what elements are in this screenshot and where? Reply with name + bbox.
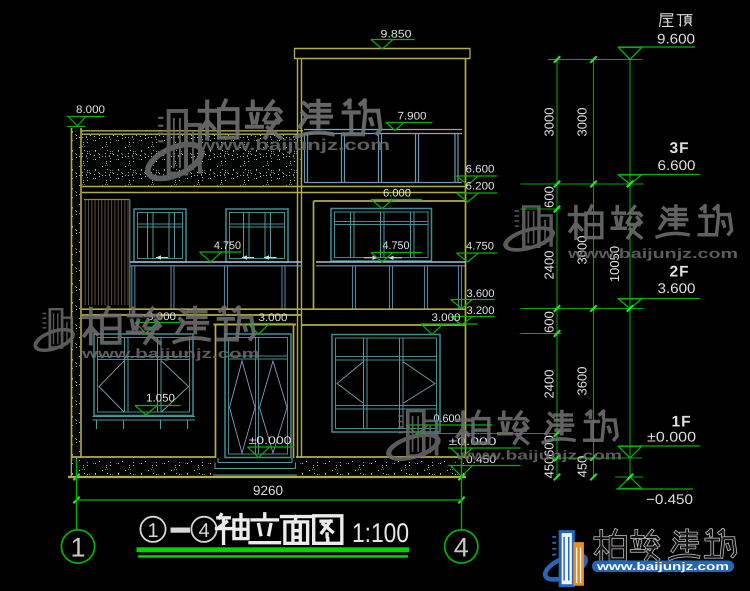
svg-text:1: 1: [70, 533, 85, 563]
svg-text:2400: 2400: [542, 370, 557, 399]
svg-text:9260: 9260: [253, 483, 283, 498]
svg-text:−0.450: −0.450: [646, 491, 693, 507]
svg-text:600: 600: [542, 186, 557, 208]
svg-text:7.900: 7.900: [398, 111, 427, 123]
svg-text:600: 600: [542, 311, 557, 333]
svg-text:4: 4: [198, 520, 209, 542]
svg-text:6.600: 6.600: [658, 157, 696, 173]
svg-text:1: 1: [147, 520, 158, 542]
svg-text:3.200: 3.200: [467, 305, 495, 317]
svg-text:www.baijunjz.com: www.baijunjz.com: [80, 346, 260, 361]
svg-text:3.600: 3.600: [658, 280, 696, 296]
svg-text:6.600: 6.600: [466, 164, 495, 176]
svg-text:6.200: 6.200: [466, 181, 495, 193]
svg-text:4.750: 4.750: [214, 240, 241, 252]
svg-text:3600: 3600: [575, 367, 590, 396]
svg-text:3F: 3F: [669, 140, 689, 157]
svg-text:6.000: 6.000: [383, 188, 411, 200]
svg-text:3.000: 3.000: [432, 312, 461, 324]
svg-text:4.750: 4.750: [466, 241, 494, 253]
svg-text:±0.000: ±0.000: [249, 435, 292, 447]
svg-text:9.600: 9.600: [657, 31, 695, 47]
svg-text:4: 4: [454, 533, 469, 563]
svg-text:3.000: 3.000: [259, 312, 288, 324]
svg-text:www.baijunjz.com: www.baijunjz.com: [197, 137, 390, 154]
svg-text:www.baijunjz.com: www.baijunjz.com: [455, 448, 622, 463]
svg-text:1:100: 1:100: [352, 518, 409, 548]
svg-text:2F: 2F: [669, 264, 689, 281]
svg-text:3000: 3000: [575, 108, 590, 137]
svg-text:www.baijunjz.com: www.baijunjz.com: [567, 246, 738, 261]
svg-text:3000: 3000: [542, 108, 557, 137]
svg-text:3.600: 3.600: [467, 288, 495, 300]
svg-text:www.baijunjz.com: www.baijunjz.com: [596, 561, 730, 573]
svg-text:2400: 2400: [542, 251, 557, 280]
svg-text:±0.000: ±0.000: [647, 429, 696, 445]
svg-text:4.750: 4.750: [383, 240, 410, 252]
svg-text:1.050: 1.050: [146, 393, 175, 405]
svg-text:8.000: 8.000: [76, 104, 105, 116]
svg-text:9.850: 9.850: [381, 29, 412, 41]
